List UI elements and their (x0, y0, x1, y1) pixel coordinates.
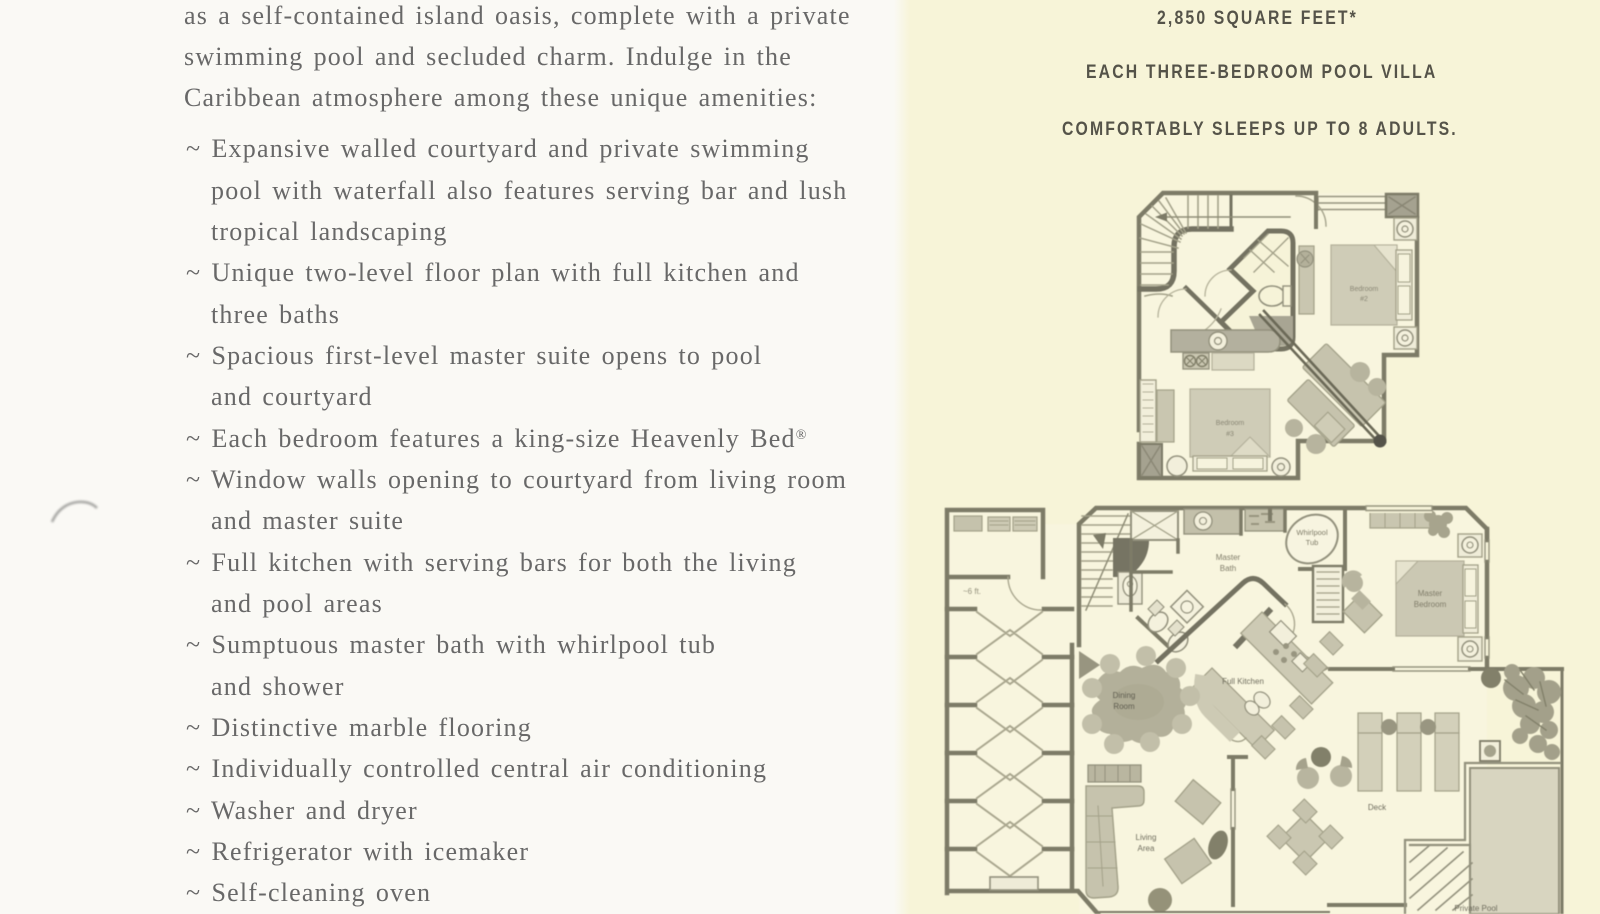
svg-text:Bedroom: Bedroom (1414, 600, 1447, 609)
svg-text:Private Pool: Private Pool (1454, 904, 1497, 913)
svg-text:Whirlpool: Whirlpool (1296, 528, 1328, 537)
svg-text:Bath: Bath (1220, 564, 1236, 573)
svg-text:#3: #3 (1226, 431, 1234, 438)
svg-text:Full Kitchen: Full Kitchen (1222, 677, 1264, 686)
svg-text:Bedroom: Bedroom (1216, 420, 1245, 427)
svg-text:Master: Master (1216, 553, 1241, 562)
svg-text:Bedroom: Bedroom (1350, 286, 1379, 293)
svg-text:Living: Living (1136, 833, 1157, 842)
svg-text:Area: Area (1138, 844, 1155, 853)
svg-text:Room: Room (1113, 702, 1135, 711)
svg-text:Dining: Dining (1113, 691, 1136, 700)
svg-text:#2: #2 (1360, 296, 1368, 303)
svg-text:Master: Master (1418, 589, 1443, 598)
svg-text:~6 ft.: ~6 ft. (963, 587, 981, 596)
svg-text:Deck: Deck (1368, 803, 1387, 812)
svg-text:Tub: Tub (1306, 538, 1319, 547)
